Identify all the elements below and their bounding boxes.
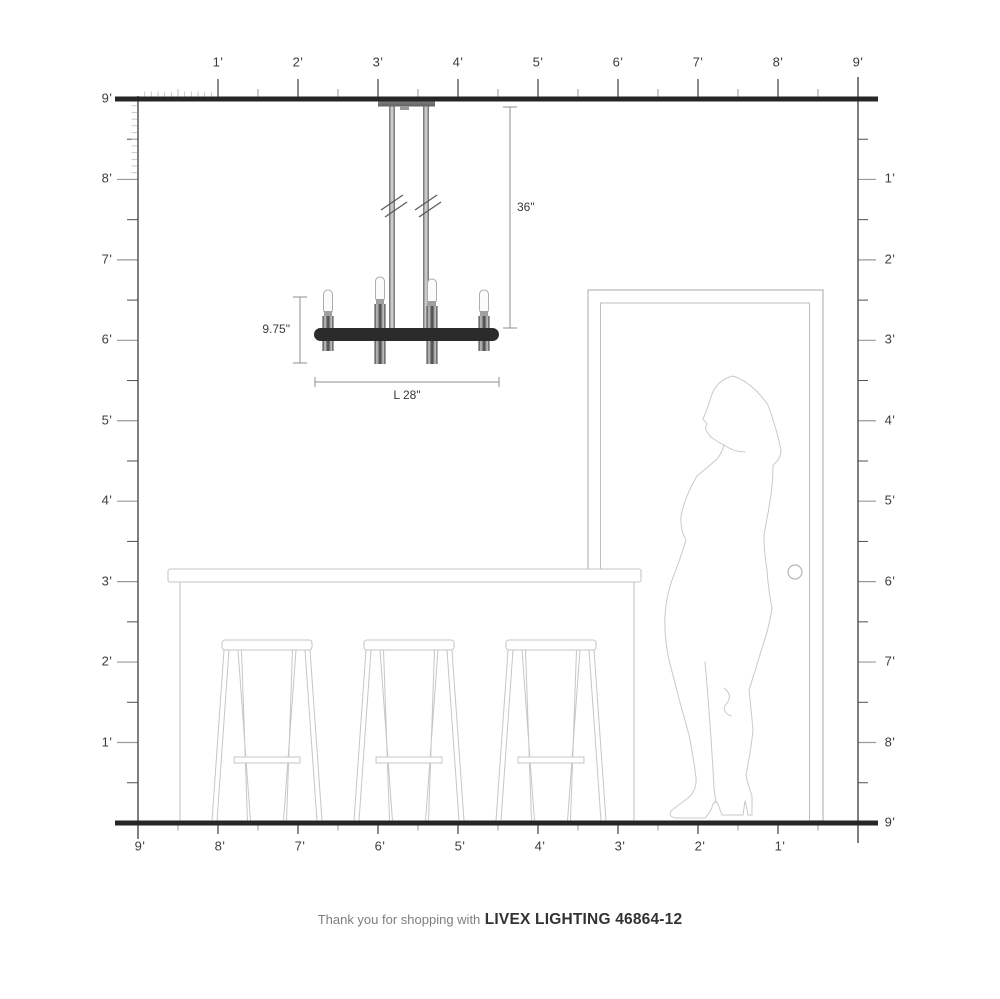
- bottom-ruler-label: 3': [615, 839, 626, 854]
- stool-stretcher: [234, 757, 300, 763]
- right-ruler-label: 7': [885, 654, 896, 669]
- drop-dimension-label: 36": [517, 200, 535, 214]
- bottom-ruler-label: 5': [455, 839, 466, 854]
- top-ruler-label: 3': [373, 55, 384, 70]
- stool-seat: [364, 640, 454, 650]
- top-ruler-label: 9': [853, 55, 864, 70]
- fixture-height-dimension-line: [293, 297, 307, 363]
- right-ruler-label: 2': [885, 251, 896, 266]
- left-ruler-label: 1': [102, 734, 113, 749]
- bottom-ruler-label: 1': [775, 839, 786, 854]
- chandelier-rod-left: [389, 105, 395, 330]
- bottom-ruler-label: 4': [535, 839, 546, 854]
- drop-dimension-line: [503, 107, 517, 328]
- length-dimension-label: L 28": [315, 388, 499, 402]
- right-ruler-label: 8': [885, 734, 896, 749]
- right-ruler-label: 1': [885, 171, 896, 186]
- fixture-height-dimension-label: 9.75": [232, 322, 290, 336]
- bottom-ruler-label: 9': [135, 839, 146, 854]
- bottom-ruler-label: 6': [375, 839, 386, 854]
- top-ruler-label: 2': [293, 55, 304, 70]
- left-ruler-label: 5': [102, 412, 113, 427]
- left-ruler-label: 3': [102, 573, 113, 588]
- footer-brand-text: LIVEX LIGHTING 46864-12: [485, 911, 683, 928]
- left-ruler-label: 6': [102, 332, 113, 347]
- left-ruler-label: 9': [102, 91, 113, 106]
- left-ruler-label: 7': [102, 251, 113, 266]
- left-ruler-label: 8': [102, 171, 113, 186]
- top-ruler-label: 7': [693, 55, 704, 70]
- island-countertop: [168, 569, 641, 582]
- left-ruler-label: 4': [102, 493, 113, 508]
- top-ruler-label: 4': [453, 55, 464, 70]
- stool-stretcher: [518, 757, 584, 763]
- stool-stretcher: [376, 757, 442, 763]
- product-scale-diagram: 1'2'3'4'5'6'7'8'9'9'8'7'6'5'4'3'2'1'1'2'…: [0, 0, 1000, 999]
- bulb: [480, 290, 489, 314]
- stool-seat: [222, 640, 312, 650]
- chandelier-lamps: [323, 277, 490, 364]
- right-ruler-label: 4': [885, 412, 896, 427]
- right-ruler-label: 3': [885, 332, 896, 347]
- length-dimension-line: [315, 377, 499, 387]
- bulb: [428, 279, 437, 304]
- chandelier: [314, 99, 499, 364]
- right-ruler-label: 9': [885, 814, 896, 829]
- bottom-ruler-label: 2': [695, 839, 706, 854]
- left-ruler-label: 2': [102, 654, 113, 669]
- top-ruler-label: 6': [613, 55, 624, 70]
- right-ruler-label: 6': [885, 573, 896, 588]
- scene-drawing: [0, 0, 1000, 999]
- chandelier-bar: [314, 328, 499, 341]
- top-ruler-label: 8': [773, 55, 784, 70]
- bulb: [324, 290, 333, 314]
- top-ruler-label: 5': [533, 55, 544, 70]
- footer-thanks-text: Thank you for shopping with: [318, 912, 481, 927]
- bottom-ruler-label: 7': [295, 839, 306, 854]
- bottom-ruler-label: 8': [215, 839, 226, 854]
- chandelier-canopy-stem: [400, 106, 409, 110]
- right-ruler-label: 5': [885, 493, 896, 508]
- top-ruler-label: 1': [213, 55, 224, 70]
- footer: Thank you for shopping with LIVEX LIGHTI…: [0, 911, 1000, 929]
- stool-seat: [506, 640, 596, 650]
- bulb: [376, 277, 385, 302]
